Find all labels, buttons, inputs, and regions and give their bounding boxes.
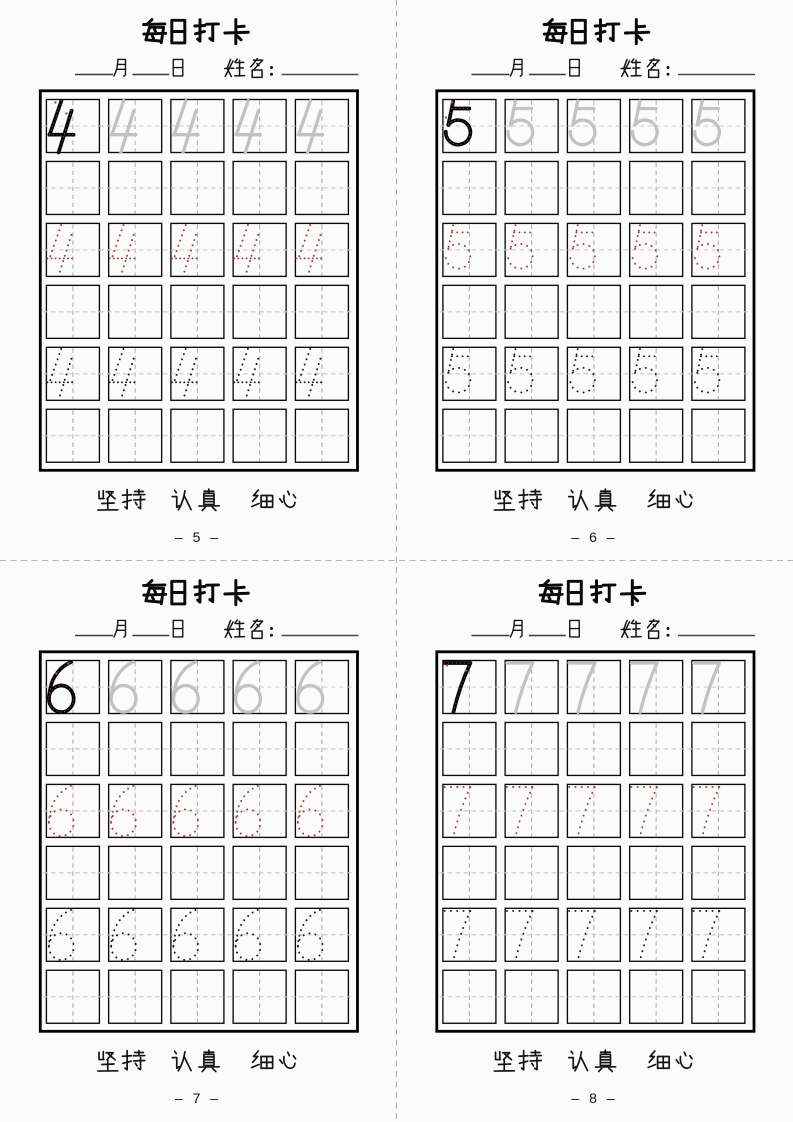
svg-text:– 7 –: – 7 – <box>175 1090 221 1106</box>
svg-text:– 5 –: – 5 – <box>175 529 221 545</box>
svg-text:– 8 –: – 8 – <box>571 1090 617 1106</box>
svg-text:– 6 –: – 6 – <box>571 529 617 545</box>
